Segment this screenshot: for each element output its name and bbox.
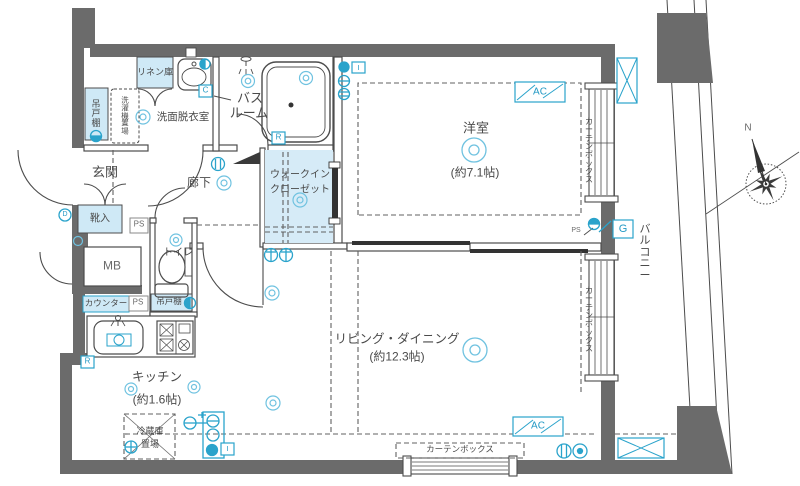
meter-box-door-arc <box>40 252 72 284</box>
living-size-label: (約12.3帖) <box>369 350 424 363</box>
step-wedge <box>233 152 260 164</box>
pipe-space-label-2: PS <box>133 299 144 308</box>
letter-r-bath-label: R <box>276 134 282 143</box>
letter-i-living-label: I <box>226 445 228 453</box>
linen-label: リネン庫 <box>137 67 173 77</box>
toilet-door-arc <box>155 188 185 218</box>
walk-in-closet-area <box>265 150 333 243</box>
curtain-box-label-living: カーテンボックス <box>585 287 594 354</box>
shower-icon <box>241 57 251 61</box>
bedroom-size-label: (約7.1帖) <box>451 166 500 179</box>
living-label: リビング・ダイニング <box>334 332 459 346</box>
entrance-label: 玄関 <box>92 166 118 181</box>
wic-label-2: クローゼット <box>270 184 330 195</box>
gas-label: G <box>619 223 628 235</box>
shoe-cabinet-label: 靴入 <box>90 213 110 224</box>
letter-d-label: D <box>62 211 67 219</box>
wic-label-1: ウォークイン <box>270 169 330 180</box>
meter-box-label: MB <box>103 259 121 272</box>
hanging-cupboard-left-label: 吊戸棚 <box>91 100 102 128</box>
kitchen-size-label: (約1.6帖) <box>133 393 182 406</box>
hallway-label: 廊下 <box>187 176 211 189</box>
pipe-space-label-3: PS <box>571 227 580 235</box>
bath-label-2: ルーム <box>230 107 269 122</box>
washroom-label: 洗面脱衣室 <box>157 112 210 124</box>
floor-plan: リネン庫 吊戸棚 洗濯機置場 洗面脱衣室 バス ルーム 玄関 靴入 廊下 ウォー… <box>0 0 800 486</box>
pipe-space-label-1: PS <box>134 221 145 230</box>
curtain-box-label-bottom: カーテンボックス <box>426 445 494 455</box>
letter-r-kitchen-label: R <box>85 358 91 367</box>
compass-north-label: N <box>744 122 751 133</box>
living-door-arc <box>203 247 263 307</box>
entrance-door-arc <box>18 150 73 205</box>
balcony-label: バルコニー <box>639 224 652 281</box>
kitchen-cupboard-label: 吊戸棚 <box>156 297 182 307</box>
bathtub-icon <box>262 62 330 142</box>
toilet-label: トイレ <box>163 247 193 258</box>
compass-needle <box>752 139 765 173</box>
ac-label-bedroom: AC <box>533 86 547 97</box>
kitchen-label: キッチン <box>132 370 182 384</box>
fridge-label-2: 置場 <box>141 439 159 449</box>
fridge-label-1: 冷蔵庫 <box>136 426 163 436</box>
bath-label-1: バス <box>237 92 263 107</box>
bedroom-label: 洋室 <box>463 122 489 137</box>
letter-c-chip-label: C <box>203 87 209 96</box>
washer-space-label: 洗濯機置場 <box>121 97 130 136</box>
letter-i-bedroom-label: I <box>357 63 359 71</box>
curtain-box-label-bedroom: カーテンボックス <box>585 118 594 185</box>
ac-label-living: AC <box>531 420 545 431</box>
floor-plan-drawing <box>0 0 800 486</box>
counter-label: カウンター <box>85 299 128 309</box>
compass-rose-icon <box>706 139 799 214</box>
door-swing-arcs <box>18 89 268 307</box>
